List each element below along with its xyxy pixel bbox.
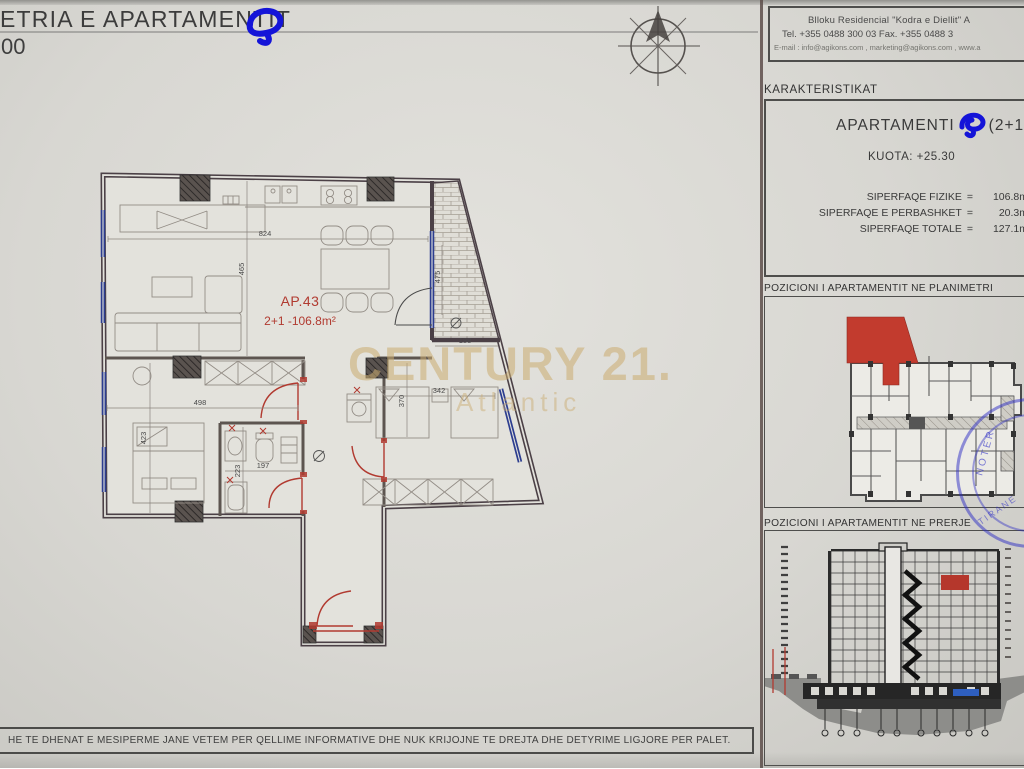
section-blue-marker [953, 689, 979, 696]
surface-row: SIPERFAQE FIZIKE = 106.8m [766, 191, 1024, 203]
dim-label: 188 [459, 336, 472, 345]
surface-value: 127.1m [978, 223, 1024, 235]
dim-label: 342 [433, 386, 446, 395]
surface-value: 20.3m [978, 207, 1024, 219]
company-phone: Tel. +355 0488 300 03 Fax. +355 0488 3 [782, 29, 1024, 40]
north-compass-icon [612, 2, 704, 88]
dim-label: 465 [237, 263, 246, 276]
apartment-position-marker [941, 575, 969, 590]
equals-sign: = [967, 207, 973, 219]
apartment-type: (2+1 [989, 117, 1024, 135]
surface-value: 106.8m [978, 191, 1024, 203]
characteristics-header: KARAKTERISTIKAT [764, 84, 878, 96]
prerje-header: POZICIONI I APARTAMENTIT NE PRERJE [764, 518, 971, 529]
scanned-sheet: ETRIA E APARTAMENTIT 00 Blloku Residenci… [0, 0, 1024, 768]
apartment-number-label: AP.43 [281, 293, 320, 309]
equals-sign: = [967, 191, 973, 203]
planimetri-header: POZICIONI I APARTAMENTIT NE PLANIMETRI [764, 283, 993, 294]
scale-fragment: 00 [1, 34, 25, 60]
company-name: Blloku Residencial "Kodra e Diellit" A [808, 15, 1024, 26]
dim-label: 197 [257, 461, 270, 470]
apartment-title-line: APARTAMENTI (2+1 [836, 111, 1024, 141]
surface-row: SIPERFAQE TOTALE = 127.1m [766, 223, 1024, 235]
characteristics-box: APARTAMENTI (2+1 KUOTA: +25.30 SIPERFAQE… [764, 99, 1024, 277]
surface-label: SIPERFAQE E PERBASHKET [819, 207, 962, 219]
elevation-tick-marks [1005, 549, 1011, 657]
dim-label: 370 [397, 395, 406, 408]
surface-label: SIPERFAQE FIZIKE [867, 191, 962, 203]
prerje-box [764, 530, 1024, 766]
company-info-box: Blloku Residencial "Kodra e Diellit" A T… [768, 6, 1024, 62]
photo-top-edge [0, 0, 1024, 5]
dim-label: 423 [139, 432, 148, 445]
surface-row: SIPERFAQE E PERBASHKET = 20.3m [766, 207, 1024, 219]
company-email: E-mail : info@agikons.com , marketing@ag… [774, 43, 1024, 52]
marker-scribble-icon [240, 3, 286, 47]
marker-scribble-icon [957, 109, 987, 139]
surface-label: SIPERFAQE TOTALE [860, 223, 962, 235]
dim-label: 498 [194, 398, 207, 407]
kuota-label: KUOTA: +25.30 [868, 151, 955, 163]
dim-label: 223 [233, 465, 242, 478]
apartment-floorplan-drawing: 824 465 498 423 197 223 342 370 188 475 … [95, 165, 555, 670]
dim-label: 824 [259, 229, 272, 238]
dim-label: 475 [433, 271, 442, 284]
apartment-label: APARTAMENTI [836, 117, 955, 135]
disclaimer-bar: HE TE DHENAT E MESIPERME JANE VETEM PER … [0, 727, 754, 754]
equals-sign: = [967, 223, 973, 235]
sheet-separator-line [760, 0, 763, 768]
apartment-area-label: 2+1 -106.8m² [264, 314, 336, 328]
surface-rows: SIPERFAQE FIZIKE = 106.8m SIPERFAQE E PE… [766, 191, 1024, 239]
photo-bottom-shade [0, 752, 1024, 768]
stair-zigzag [905, 571, 919, 679]
building-section-drawing [765, 531, 1024, 764]
